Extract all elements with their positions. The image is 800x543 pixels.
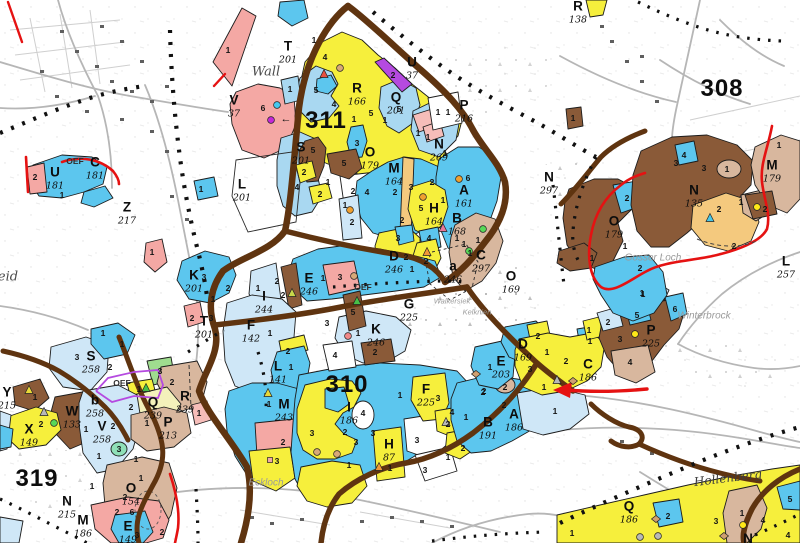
circle-symbol <box>655 533 662 540</box>
circle-symbol <box>51 420 58 427</box>
circle-symbol <box>456 176 463 183</box>
circle-symbol <box>334 451 341 458</box>
circle-symbol <box>351 273 358 280</box>
circle-symbol <box>337 65 344 72</box>
circle-symbol <box>274 102 281 109</box>
forestry-map: 311310308319T201V37U37R166Q201P216N269S2… <box>0 0 800 543</box>
circle-symbol <box>314 449 321 456</box>
circle-symbol <box>637 534 644 541</box>
circle-symbol <box>740 522 747 529</box>
circle-symbol <box>480 226 487 233</box>
circle-symbol <box>632 331 639 338</box>
map-canvas <box>0 0 800 543</box>
circle-symbol <box>345 333 352 340</box>
circle-symbol <box>347 207 354 214</box>
circle-symbol <box>754 204 761 211</box>
square-symbol <box>268 458 273 463</box>
circle-symbol <box>420 194 427 201</box>
circle-symbol <box>268 117 275 124</box>
circle-symbol <box>466 248 473 255</box>
